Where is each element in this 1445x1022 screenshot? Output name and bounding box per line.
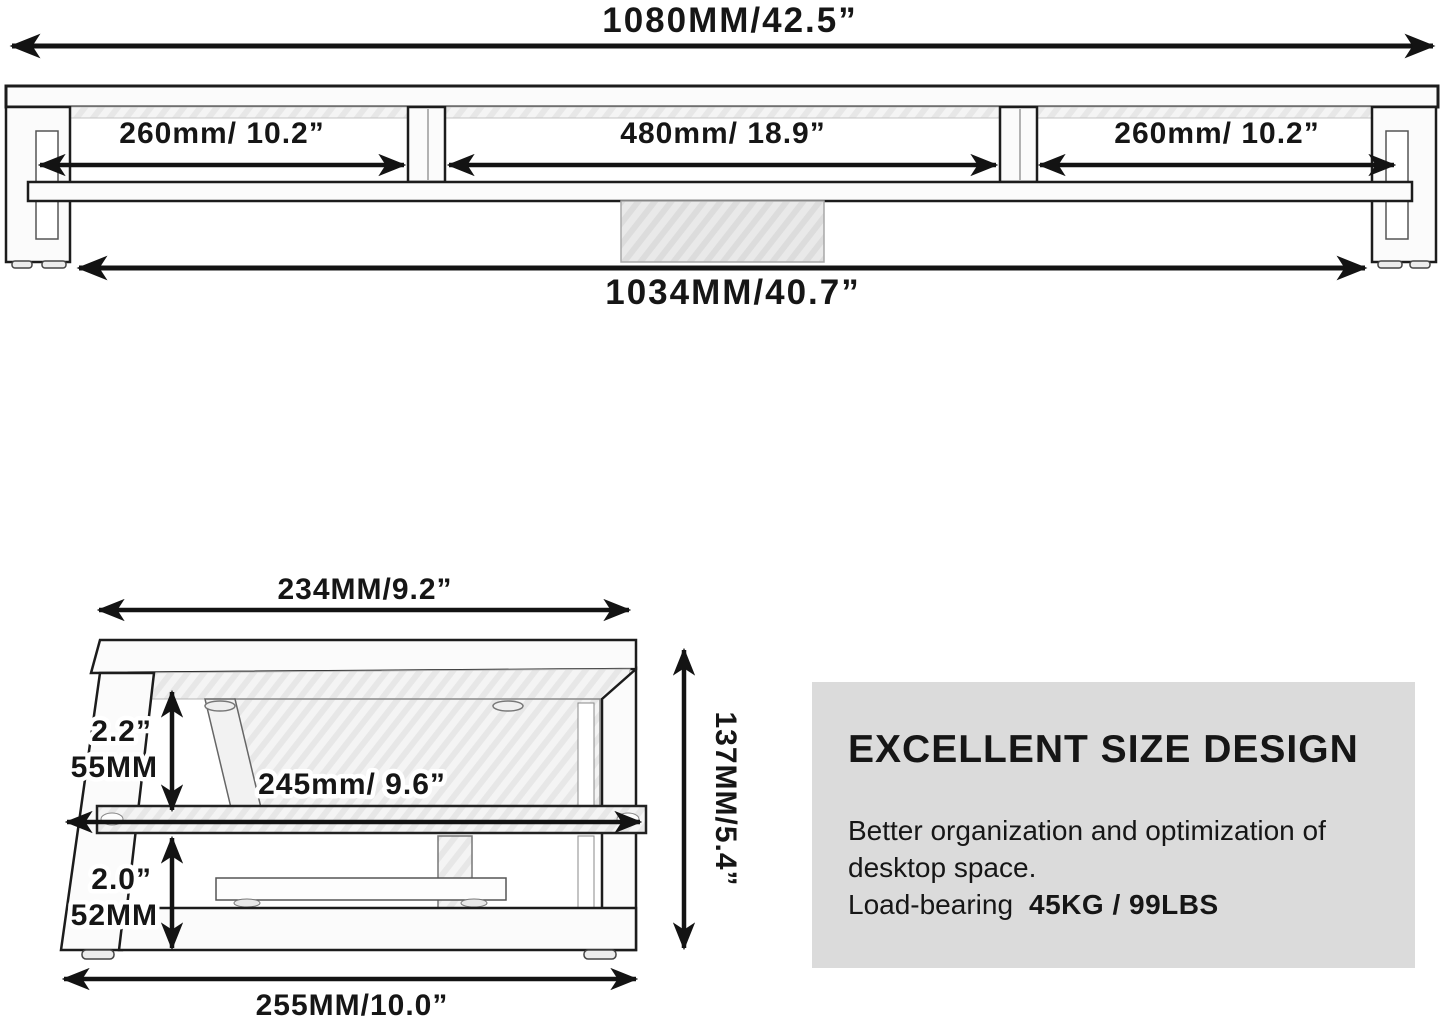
info-box-body-line2: desktop space. <box>848 849 1389 886</box>
info-box: EXCELLENT SIZE DESIGN Better organizatio… <box>812 682 1415 968</box>
front-top-width-label: 1080MM/42.5” <box>602 1 858 40</box>
front-right-foot <box>1378 261 1402 268</box>
front-bottom-width-label: 1034MM/40.7” <box>605 273 861 312</box>
front-left-divider <box>408 107 445 182</box>
front-view-diagram: 1080MM/42.5” 260mm/ <box>6 1 1438 312</box>
front-right-divider <box>1000 107 1037 182</box>
side-slab-underside <box>107 669 630 699</box>
load-bearing-value: 45KG / 99LBS <box>1029 889 1219 920</box>
side-upper-slot <box>578 703 594 808</box>
side-shelf <box>97 806 646 833</box>
side-height-label: 137MM/5.4” <box>709 711 742 886</box>
side-top-depth-label: 234MM/9.2” <box>277 573 452 606</box>
side-inner-base-bar <box>216 878 506 900</box>
side-left-foot <box>82 950 114 959</box>
front-center-opening-label: 480mm/ 18.9” <box>620 117 825 150</box>
info-box-load-line: Load-bearing45KG / 99LBS <box>848 886 1389 923</box>
side-top-slab <box>91 640 636 673</box>
front-left-foot <box>42 261 66 268</box>
side-upper-gap-inches: 2.2” <box>91 715 152 748</box>
info-box-title: EXCELLENT SIZE DESIGN <box>848 728 1389 772</box>
side-bottom-depth-label: 255MM/10.0” <box>256 989 449 1022</box>
front-right-opening-label: 260mm/ 10.2” <box>1114 117 1319 150</box>
front-left-opening-label: 260mm/ 10.2” <box>119 117 324 150</box>
side-view-diagram: 234MM/9.2” <box>61 573 742 1022</box>
front-shelf <box>28 182 1412 201</box>
front-left-foot <box>12 261 32 268</box>
side-right-foot <box>584 950 616 959</box>
side-inner-foot <box>234 899 260 907</box>
load-bearing-label: Load-bearing <box>848 889 1013 920</box>
info-box-body-line1: Better organization and optimization of <box>848 812 1389 849</box>
side-inner-foot <box>461 899 487 907</box>
side-bottom-board <box>119 908 636 950</box>
side-middle-depth-label: 245mm/ 9.6” <box>258 768 446 801</box>
front-top-board <box>6 86 1438 107</box>
front-center-pillar <box>621 201 824 262</box>
side-upper-gap-mm: 55MM <box>71 751 158 784</box>
side-screw-hole <box>205 701 235 711</box>
product-dimension-sheet: 1080MM/42.5” 260mm/ <box>0 0 1445 1022</box>
side-lower-gap-inches: 2.0” <box>91 863 152 896</box>
front-right-foot <box>1410 261 1430 268</box>
side-lower-gap-mm: 52MM <box>71 899 158 932</box>
side-screw-hole <box>493 701 523 711</box>
